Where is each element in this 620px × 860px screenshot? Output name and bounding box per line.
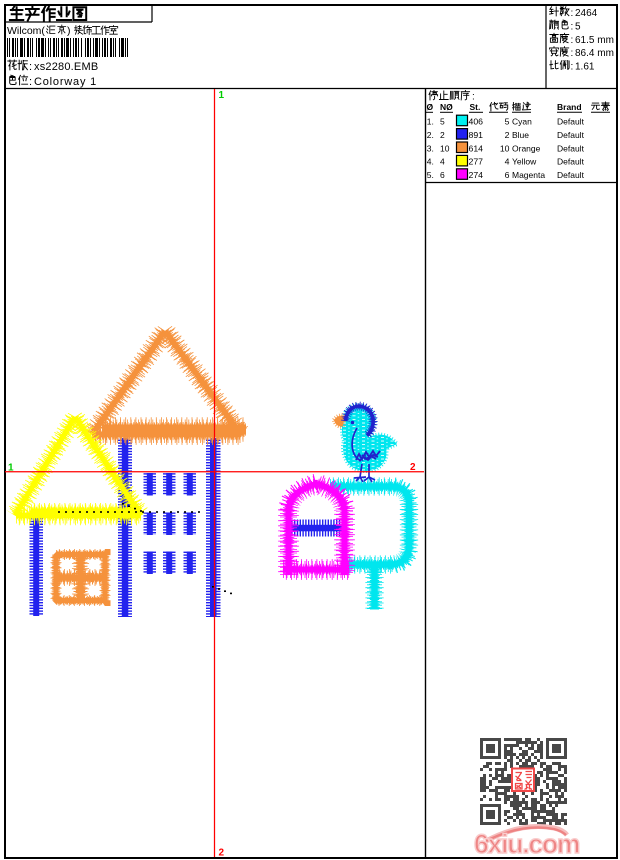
svg-text:277: 277 (469, 157, 484, 167)
svg-text:2: 2 (219, 848, 225, 859)
svg-text:): ) (67, 25, 71, 37)
svg-text::: : (472, 92, 475, 103)
svg-text:10: 10 (440, 143, 450, 153)
svg-text:2464: 2464 (575, 8, 598, 19)
svg-text:Brand: Brand (557, 102, 582, 112)
svg-text:5: 5 (440, 117, 445, 127)
svg-text:1: 1 (219, 90, 225, 101)
svg-text:xs2280.EMB: xs2280.EMB (34, 61, 98, 73)
svg-text:Default: Default (557, 117, 585, 127)
svg-text:6: 6 (505, 170, 510, 180)
svg-text:2: 2 (440, 130, 445, 140)
svg-text:6xiu.com: 6xiu.com (474, 829, 579, 859)
svg-text:4.: 4. (427, 157, 434, 167)
svg-text::: : (571, 62, 574, 73)
svg-text:1: 1 (8, 463, 14, 474)
svg-text:274: 274 (469, 170, 484, 180)
svg-text:4: 4 (440, 157, 445, 167)
svg-text:5.: 5. (427, 170, 434, 180)
svg-text:Default: Default (557, 130, 585, 140)
svg-text::: : (571, 8, 574, 19)
svg-text:614: 614 (469, 143, 484, 153)
svg-text::: : (571, 35, 574, 46)
svg-text:1.61: 1.61 (575, 62, 595, 73)
svg-text:St.: St. (470, 102, 481, 112)
svg-text::: : (571, 48, 574, 59)
svg-text:Orange: Orange (512, 143, 541, 153)
svg-text:86.4 mm: 86.4 mm (575, 48, 614, 59)
svg-text:Cyan: Cyan (512, 117, 532, 127)
svg-text:891: 891 (469, 130, 484, 140)
svg-text:4: 4 (505, 157, 510, 167)
svg-text:NØ: NØ (440, 102, 453, 112)
svg-text::: : (29, 61, 32, 73)
svg-text:61.5 mm: 61.5 mm (575, 35, 614, 46)
svg-text:1.: 1. (427, 117, 434, 127)
svg-text:2: 2 (410, 462, 416, 473)
svg-text::: : (571, 21, 574, 32)
svg-text:5: 5 (505, 117, 510, 127)
svg-text:5: 5 (575, 21, 581, 32)
svg-text:Blue: Blue (512, 130, 529, 140)
svg-text:Magenta: Magenta (512, 170, 545, 180)
svg-text:Colorway 1: Colorway 1 (34, 76, 97, 88)
svg-text:406: 406 (469, 117, 484, 127)
svg-text:Ø: Ø (427, 102, 434, 112)
svg-text:10: 10 (500, 143, 510, 153)
svg-text:2.: 2. (427, 130, 434, 140)
svg-text:3.: 3. (427, 143, 434, 153)
svg-text:Default: Default (557, 143, 585, 153)
svg-text:Default: Default (557, 157, 585, 167)
svg-text:2: 2 (505, 130, 510, 140)
svg-text:6: 6 (440, 170, 445, 180)
svg-text:Wilcom(: Wilcom( (7, 25, 45, 37)
svg-text:Default: Default (557, 170, 585, 180)
svg-text::: : (29, 76, 32, 88)
svg-text:Yellow: Yellow (512, 157, 537, 167)
